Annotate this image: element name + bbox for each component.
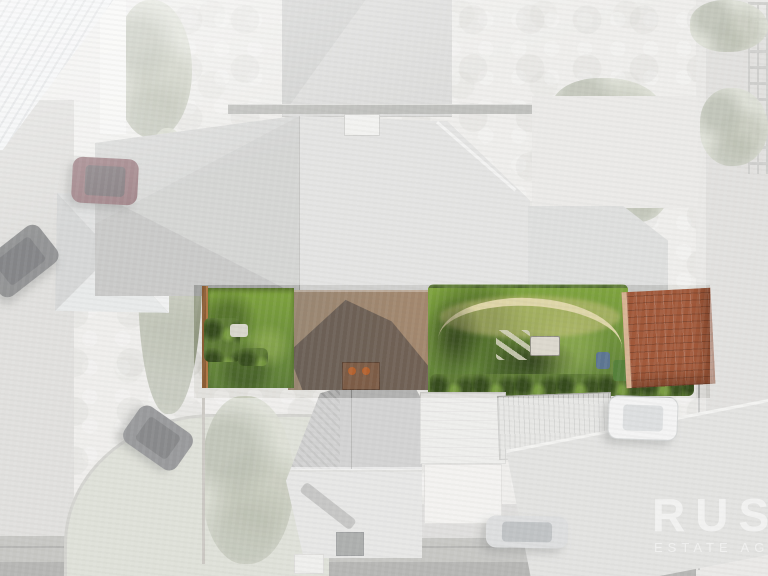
conservatory-roof	[424, 464, 502, 524]
white-wall-top-left	[100, 0, 126, 134]
terracotta-garage-roof	[622, 288, 716, 389]
fence-mid-dark-line	[228, 104, 532, 114]
white-garage-roof	[420, 392, 506, 464]
patio-right	[532, 96, 698, 208]
aerial-photo: RUSH ESTATE AGENCY	[0, 0, 768, 576]
roof-shading	[282, 0, 376, 116]
bottom-roof-valley	[351, 390, 352, 469]
chimney-pot	[362, 367, 370, 375]
porch	[294, 554, 324, 574]
bush-left-small	[238, 348, 268, 366]
shrubs-top-corner	[690, 0, 768, 52]
stone-slab	[230, 324, 248, 337]
main-house-roof	[95, 116, 530, 296]
tree-shadow	[424, 296, 484, 382]
white-car	[607, 395, 678, 441]
wheelie-bin-blue	[596, 352, 610, 369]
brick-chimney	[342, 362, 380, 390]
garden-table	[530, 336, 560, 356]
fence-bottom-left	[202, 398, 205, 564]
dark-chimney	[336, 532, 364, 556]
chimney-pot	[348, 367, 356, 375]
white-chimney	[344, 114, 380, 136]
road-left	[0, 100, 74, 576]
hedge-top-left	[116, 0, 192, 138]
car-cabin	[84, 165, 125, 197]
roof-valley-line	[299, 116, 300, 296]
stepping-stones	[496, 330, 530, 360]
car-cabin	[622, 404, 664, 432]
top-house-roof	[282, 0, 452, 117]
garden-bottom-left	[202, 396, 294, 564]
maroon-car	[71, 156, 139, 205]
shrubs-right	[700, 88, 768, 166]
car-cabin	[502, 521, 552, 542]
silver-car	[486, 515, 569, 548]
car-cabin	[134, 415, 182, 460]
bottom-roof-ridge	[286, 467, 422, 470]
